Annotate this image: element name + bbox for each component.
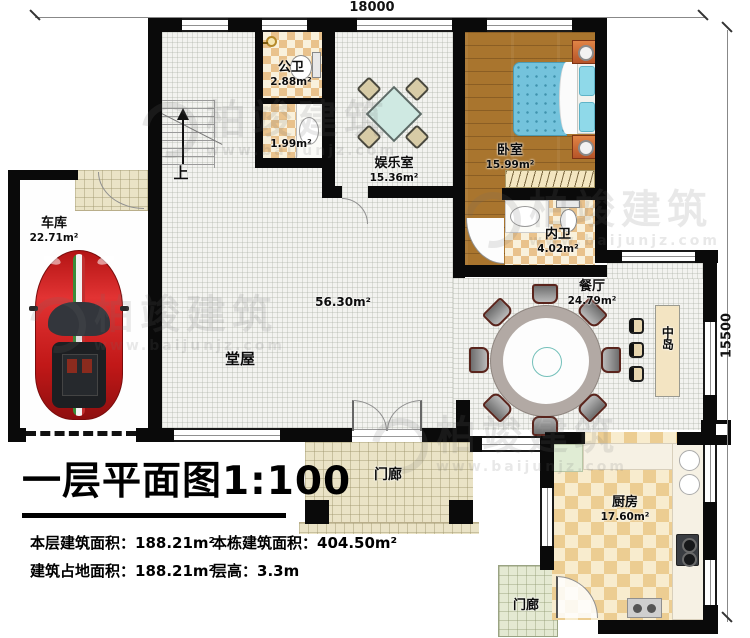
- wall-segment: [162, 428, 174, 442]
- wall-segment: [8, 428, 26, 442]
- lamp-icon: [578, 140, 594, 156]
- kitchen-appliance: [627, 598, 662, 618]
- stat-storey-height: 层高：3.3m: [212, 560, 299, 581]
- burner-icon: [682, 538, 697, 553]
- wall-segment: [255, 158, 335, 168]
- bed: [513, 62, 597, 134]
- wall-segment: [540, 546, 554, 570]
- plan-title: 一层平面图1:100: [22, 450, 351, 506]
- wall-segment: [148, 18, 162, 442]
- wall-segment: [8, 170, 20, 442]
- wall-segment: [703, 395, 717, 442]
- window: [174, 428, 280, 442]
- wall-segment: [470, 436, 482, 452]
- wall-segment: [695, 250, 718, 263]
- kitchen-island: [655, 305, 680, 397]
- wall-segment: [456, 400, 470, 442]
- ensuite-sink: [510, 206, 540, 227]
- dining-table-center: [532, 347, 562, 377]
- kitchen-counter-top: [583, 443, 673, 470]
- room-label-island: 中岛: [660, 326, 674, 350]
- wall-segment: [322, 186, 342, 198]
- room-label-hall-area: 56.30m²: [308, 295, 378, 309]
- stool: [629, 318, 644, 334]
- room-label-kitchen: 厨房17.60m²: [585, 495, 665, 523]
- pillow: [579, 102, 595, 132]
- room-label-public-bath: 公卫2.88m²: [258, 60, 324, 88]
- wall-segment: [322, 18, 335, 198]
- room-label-bedroom: 卧室15.99m²: [475, 143, 545, 171]
- burner-icon: [633, 604, 642, 613]
- window: [487, 18, 572, 32]
- car-windshield: [48, 302, 110, 336]
- bed-sheet: [559, 62, 578, 134]
- dimension-tick: [29, 9, 40, 20]
- wall-segment: [595, 18, 607, 263]
- chair: [601, 347, 621, 373]
- engine-detail: [62, 354, 98, 396]
- chair: [469, 347, 489, 373]
- wall-segment: [703, 502, 717, 560]
- room-label-garage: 车库22.71m²: [12, 216, 96, 244]
- room-label-washroom: 1.99m²: [258, 138, 324, 151]
- stairs-arrow-line: [182, 120, 184, 164]
- wall-segment: [545, 432, 585, 444]
- wall-segment: [368, 186, 453, 198]
- window: [540, 488, 554, 546]
- stat-total-area: 本栋建筑面积：404.50m²: [212, 532, 397, 553]
- wardrobe: [505, 170, 595, 188]
- stat-footprint-area: 建筑占地面积：188.21m²: [30, 560, 215, 581]
- burner-icon: [647, 604, 656, 613]
- wall-segment: [263, 98, 322, 104]
- window: [482, 436, 540, 452]
- window: [703, 445, 717, 502]
- room-label-entertainment: 娱乐室15.36m²: [356, 156, 432, 184]
- title-block: 一层平面图1:100: [22, 450, 351, 518]
- porch-column: [449, 500, 473, 524]
- top-dimension-value: 18000: [342, 0, 402, 15]
- fridge: [553, 444, 583, 472]
- wall-segment: [453, 265, 607, 277]
- top-dimension-line: [35, 17, 705, 18]
- car: [35, 250, 123, 420]
- room-label-back-porch: 门廊: [500, 598, 552, 614]
- lamp-icon: [578, 45, 594, 61]
- wall-segment: [280, 428, 352, 442]
- window: [357, 18, 452, 32]
- car-engine-cover: [52, 342, 106, 408]
- kitchen-sink-bowl: [679, 474, 700, 495]
- side-mirror: [120, 306, 129, 311]
- side-mirror: [29, 306, 38, 311]
- window: [703, 322, 717, 395]
- dimension-tick: [697, 9, 708, 20]
- window: [262, 18, 307, 32]
- room-label-dining: 餐厅24.79m²: [552, 279, 632, 307]
- kitchen-sink-bowl: [679, 450, 700, 471]
- burner-icon: [682, 552, 697, 567]
- window: [622, 250, 695, 263]
- window: [182, 18, 228, 32]
- stool: [629, 366, 644, 382]
- floor-plan-canvas: 18000 15500: [0, 0, 750, 638]
- garage-door-dashed: [26, 431, 136, 436]
- stairs-up-label: 上: [166, 164, 196, 182]
- room-label-ensuite: 内卫4.02m²: [526, 227, 590, 255]
- dining-floor-strip: [607, 263, 703, 279]
- room-label-hall: 堂屋: [208, 350, 272, 368]
- wall-segment: [136, 428, 162, 442]
- pillow: [579, 66, 595, 96]
- wall-segment: [453, 18, 465, 278]
- toilet-tank: [556, 200, 580, 208]
- room-label-front-porch: 门廊: [356, 467, 420, 484]
- title-underline: [22, 513, 286, 518]
- stat-floor-area: 本层建筑面积：188.21m²: [30, 532, 215, 553]
- wall-segment: [502, 188, 595, 200]
- stove: [676, 534, 699, 566]
- wall-segment: [703, 605, 718, 634]
- window: [703, 560, 717, 605]
- wall-segment: [598, 620, 705, 634]
- stool: [629, 342, 644, 358]
- corner-post-notch: [716, 424, 727, 435]
- right-dimension-value: 15500: [720, 306, 735, 366]
- stairs-arrow-head: [177, 108, 189, 120]
